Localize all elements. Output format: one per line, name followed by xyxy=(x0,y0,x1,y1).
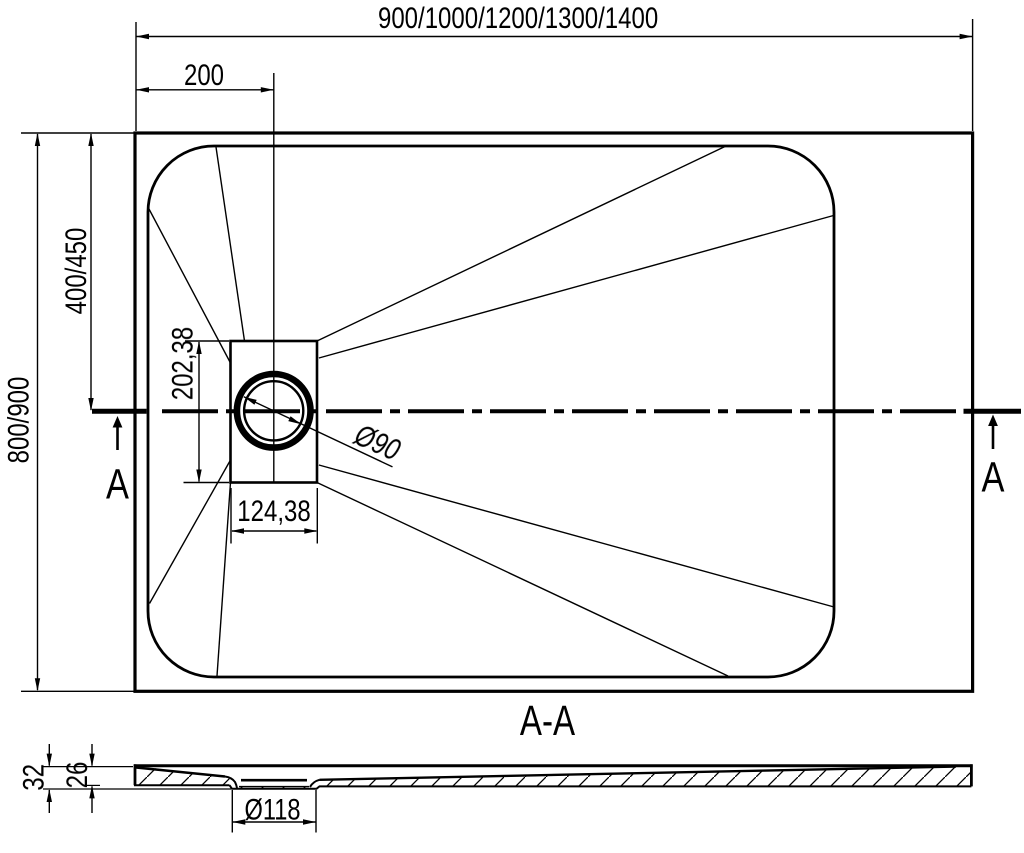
svg-text:200: 200 xyxy=(184,57,224,91)
svg-text:A: A xyxy=(982,454,1005,501)
svg-text:32: 32 xyxy=(16,764,50,791)
svg-text:A-A: A-A xyxy=(520,697,576,745)
svg-text:124,38: 124,38 xyxy=(237,493,310,527)
svg-text:A: A xyxy=(106,461,129,508)
svg-text:Ø118: Ø118 xyxy=(245,793,301,826)
svg-text:Ø90: Ø90 xyxy=(349,417,406,468)
svg-text:800/900: 800/900 xyxy=(1,377,35,464)
svg-text:202,38: 202,38 xyxy=(165,327,199,400)
svg-text:26: 26 xyxy=(59,762,93,789)
svg-text:900/1000/1200/1300/1400: 900/1000/1200/1300/1400 xyxy=(378,0,658,34)
svg-text:400/450: 400/450 xyxy=(58,228,92,315)
